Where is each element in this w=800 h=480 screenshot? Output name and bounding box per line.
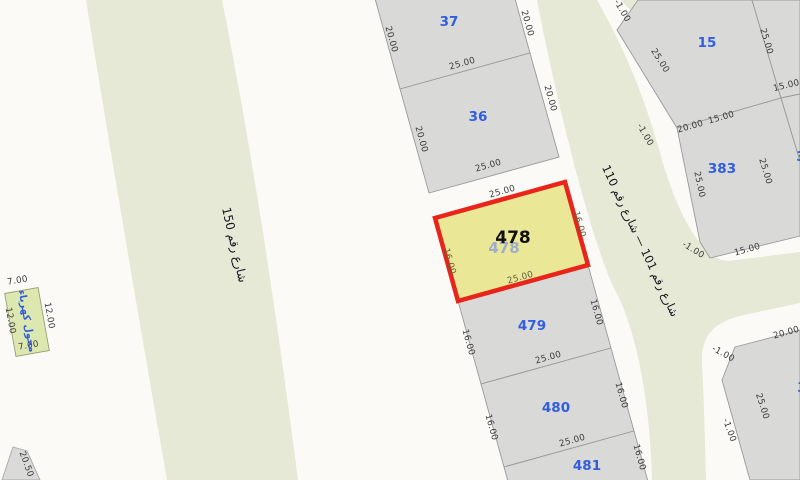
parcel-number-37: 37 — [440, 14, 459, 30]
parcel-number-15: 15 — [698, 35, 717, 51]
parcel-number-36: 36 — [469, 109, 488, 125]
parcel-number-383: 383 — [708, 161, 736, 177]
parcel-number-480: 480 — [542, 400, 570, 416]
map-viewport: 20.0025.0020.0020.0020.0025.0025.0016.00… — [0, 0, 800, 480]
parcel-number-481: 481 — [573, 458, 601, 474]
parcel-number-479: 479 — [518, 318, 546, 334]
map-canvas: 20.0025.0020.0020.0020.0025.0025.0016.00… — [0, 0, 800, 480]
parcel-number-3: 3 — [796, 149, 800, 165]
highlighted-parcel-number: 478 — [495, 228, 531, 248]
